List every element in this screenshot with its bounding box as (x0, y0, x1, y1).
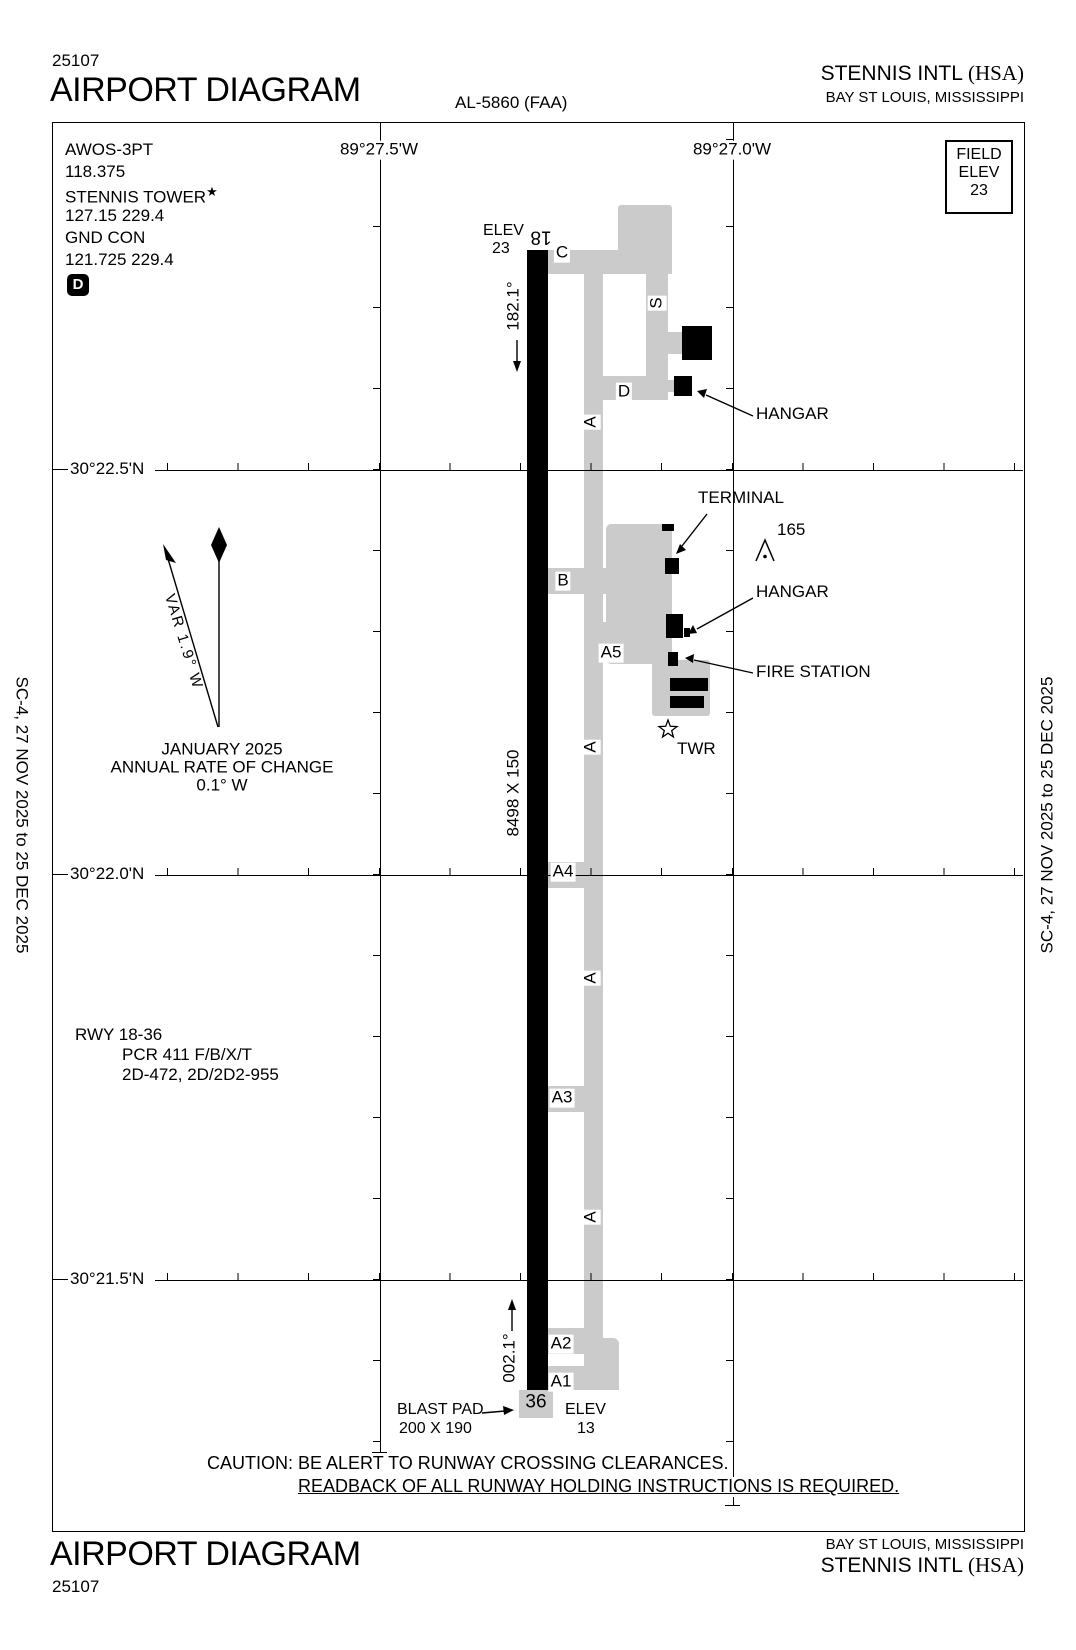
taxiway-c-label: C (554, 244, 570, 263)
blast-pad-label: BLAST PAD (397, 1401, 484, 1419)
taxiway-a-label-3: A (582, 970, 601, 985)
awos-label: AWOS-3PT (65, 141, 153, 160)
lat-gridline-2 (155, 868, 1023, 876)
taxiway-d-label: D (616, 383, 632, 402)
tower-label-map: TWR (677, 740, 716, 759)
runway-18-number: 18 (530, 226, 551, 247)
terminal-callout: TERMINAL (698, 489, 784, 508)
side-date-left: SC-4, 27 NOV 2025 to 25 DEC 2025 (12, 677, 31, 954)
footer-chart-number: 25107 (52, 1578, 99, 1597)
rwy36-heading: 002.1° (501, 1333, 520, 1382)
lat-gridline-3-stub (52, 1279, 68, 1280)
hangar-building-mid (666, 614, 683, 638)
lon-label-1: 89°27.5'W (338, 141, 420, 160)
lat-label-2: 30°22.0'N (70, 865, 144, 884)
lat-gridline-2-stub (52, 874, 68, 875)
blast-pad-size: 200 X 190 (399, 1420, 472, 1438)
taxiway-s-label: S (648, 295, 667, 310)
lon-gridline-2 (726, 122, 734, 1505)
airport-name-header: STENNIS INTL (HSA) (821, 62, 1024, 85)
rwy18-elev-value: 23 (492, 240, 510, 258)
variation-rate-line1: ANNUAL RATE OF CHANGE (111, 759, 334, 778)
chart-code: AL-5860 (FAA) (455, 94, 567, 113)
airport-diagram-page: 25107 AIRPORT DIAGRAM AL-5860 (FAA) STEN… (0, 0, 1076, 1650)
d-atis-symbol-icon: D (67, 274, 89, 296)
taxiway-a3-label: A3 (550, 1089, 575, 1108)
runway-18-36 (527, 250, 548, 1390)
taxiway-a4-label: A4 (551, 863, 576, 882)
rwy18-heading: 182.1° (505, 281, 524, 330)
page-title: AIRPORT DIAGRAM (50, 72, 361, 109)
rwy18-elev-label: ELEV (483, 222, 524, 240)
city-state-header: BAY ST LOUIS, MISSISSIPPI (826, 90, 1024, 107)
caution-line1: CAUTION: BE ALERT TO RUNWAY CROSSING CLE… (205, 1454, 730, 1474)
lon-gridline-1 (373, 122, 381, 1452)
gnd-con-label: GND CON (65, 229, 145, 248)
obstacle-height: 165 (777, 521, 805, 540)
rwy-info-line2: PCR 411 F/B/X/T (122, 1046, 252, 1065)
field-elev-box: FIELD ELEV 23 (945, 140, 1013, 214)
gnd-con-freqs: 121.725 229.4 (65, 251, 174, 270)
hangar-building-small (674, 376, 692, 396)
hangar-building-north (682, 326, 712, 360)
tower-label: STENNIS TOWER★ (65, 185, 218, 207)
footer-title: AIRPORT DIAGRAM (50, 1536, 361, 1573)
taxiway-a1-label: A1 (549, 1373, 574, 1392)
variation-date: JANUARY 2025 (161, 741, 282, 760)
tower-freqs: 127.15 229.4 (65, 207, 164, 226)
hangar-bar-2 (670, 696, 704, 708)
airport-id: (HSA) (968, 61, 1024, 85)
lat-label-1: 30°22.5'N (70, 460, 144, 479)
side-date-right: SC-4, 27 NOV 2025 to 25 DEC 2025 (1039, 677, 1058, 954)
footer-city-state: BAY ST LOUIS, MISSISSIPPI (826, 1537, 1024, 1554)
rwy-info-line3: 2D-472, 2D/2D2-955 (122, 1066, 279, 1085)
taxiway-a-label-1: A (582, 414, 601, 429)
runway-36-number: 36 (525, 1393, 546, 1414)
terminal-building (665, 558, 679, 574)
hangar-callout-mid: HANGAR (756, 583, 829, 602)
terminal-outbuilding (662, 524, 674, 531)
field-elev-line2: ELEV (947, 164, 1011, 182)
fire-station-callout: FIRE STATION (756, 663, 871, 682)
chart-number: 25107 (52, 52, 99, 71)
rwy36-elev-value: 13 (577, 1420, 595, 1438)
taxiway-a5-label: A5 (599, 644, 624, 663)
hangar-bar-1 (670, 678, 708, 691)
taxiway-a-label-2: A (582, 739, 601, 754)
rwy-info-line1: RWY 18-36 (75, 1026, 162, 1045)
field-elev-value: 23 (947, 182, 1011, 200)
runway-dimensions: 8498 X 150 (505, 750, 524, 837)
taxiway-a2-label: A2 (549, 1335, 574, 1354)
airport-name: STENNIS INTL (821, 62, 963, 85)
field-elev-line1: FIELD (947, 146, 1011, 164)
variation-rate-line2: 0.1° W (196, 777, 247, 796)
lat-gridline-3 (155, 1273, 1023, 1281)
lon-label-2: 89°27.0'W (691, 141, 773, 160)
rwy36-elev-label: ELEV (565, 1401, 606, 1419)
taxiway-a-label-4: A (582, 1209, 601, 1224)
lat-gridline-1 (155, 463, 1023, 471)
footer-airport-name: STENNIS INTL (HSA) (821, 1554, 1024, 1577)
caution-line2: READBACK OF ALL RUNWAY HOLDING INSTRUCTI… (296, 1477, 901, 1497)
hangar-callout-north: HANGAR (756, 405, 829, 424)
lon-gridline-2-end-tick (725, 1505, 740, 1506)
lat-label-3: 30°21.5'N (70, 1270, 144, 1289)
taxiway-b-label: B (555, 572, 570, 591)
tower-star-icon: ★ (206, 184, 218, 199)
hangar-annex (684, 628, 690, 637)
awos-freq: 118.375 (65, 163, 125, 182)
fire-station-building (668, 652, 678, 666)
lat-gridline-1-stub (52, 469, 68, 470)
